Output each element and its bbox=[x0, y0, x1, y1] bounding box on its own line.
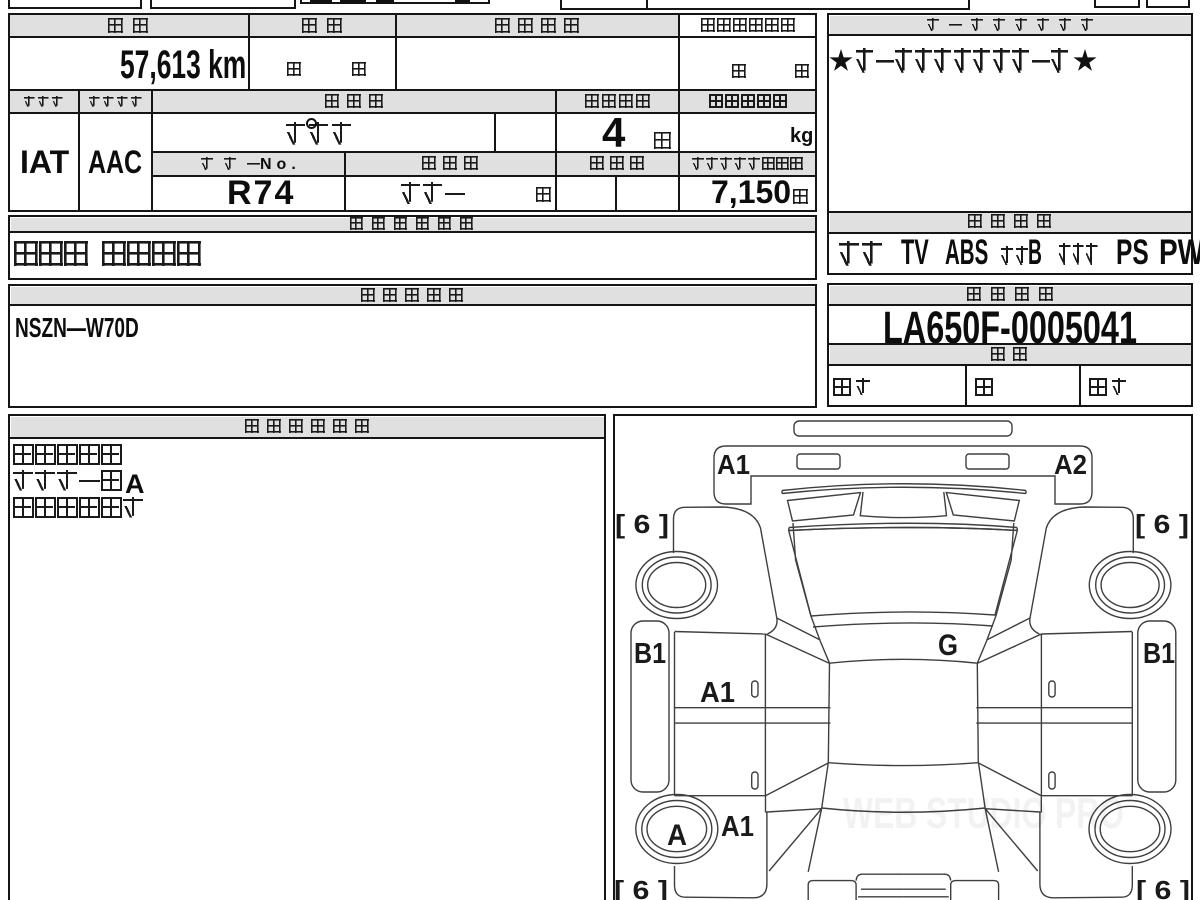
svg-text:A2: A2 bbox=[1054, 449, 1087, 480]
svg-text:[ 6 ]: [ 6 ] bbox=[1136, 875, 1190, 900]
svg-text:B1: B1 bbox=[634, 638, 666, 670]
svg-text:[ 6 ]: [ 6 ] bbox=[614, 875, 668, 900]
svg-text:[ 6 ]: [ 6 ] bbox=[1135, 509, 1189, 539]
svg-text:[ 6 ]: [ 6 ] bbox=[615, 509, 669, 539]
svg-text:G: G bbox=[938, 629, 958, 662]
svg-text:B1: B1 bbox=[1143, 638, 1175, 670]
svg-text:A1: A1 bbox=[721, 811, 754, 843]
svg-text:A1: A1 bbox=[717, 449, 750, 480]
svg-text:A: A bbox=[667, 819, 687, 852]
svg-text:WEB STUDIO PRO: WEB STUDIO PRO bbox=[843, 789, 1124, 838]
svg-text:A1: A1 bbox=[700, 677, 735, 709]
